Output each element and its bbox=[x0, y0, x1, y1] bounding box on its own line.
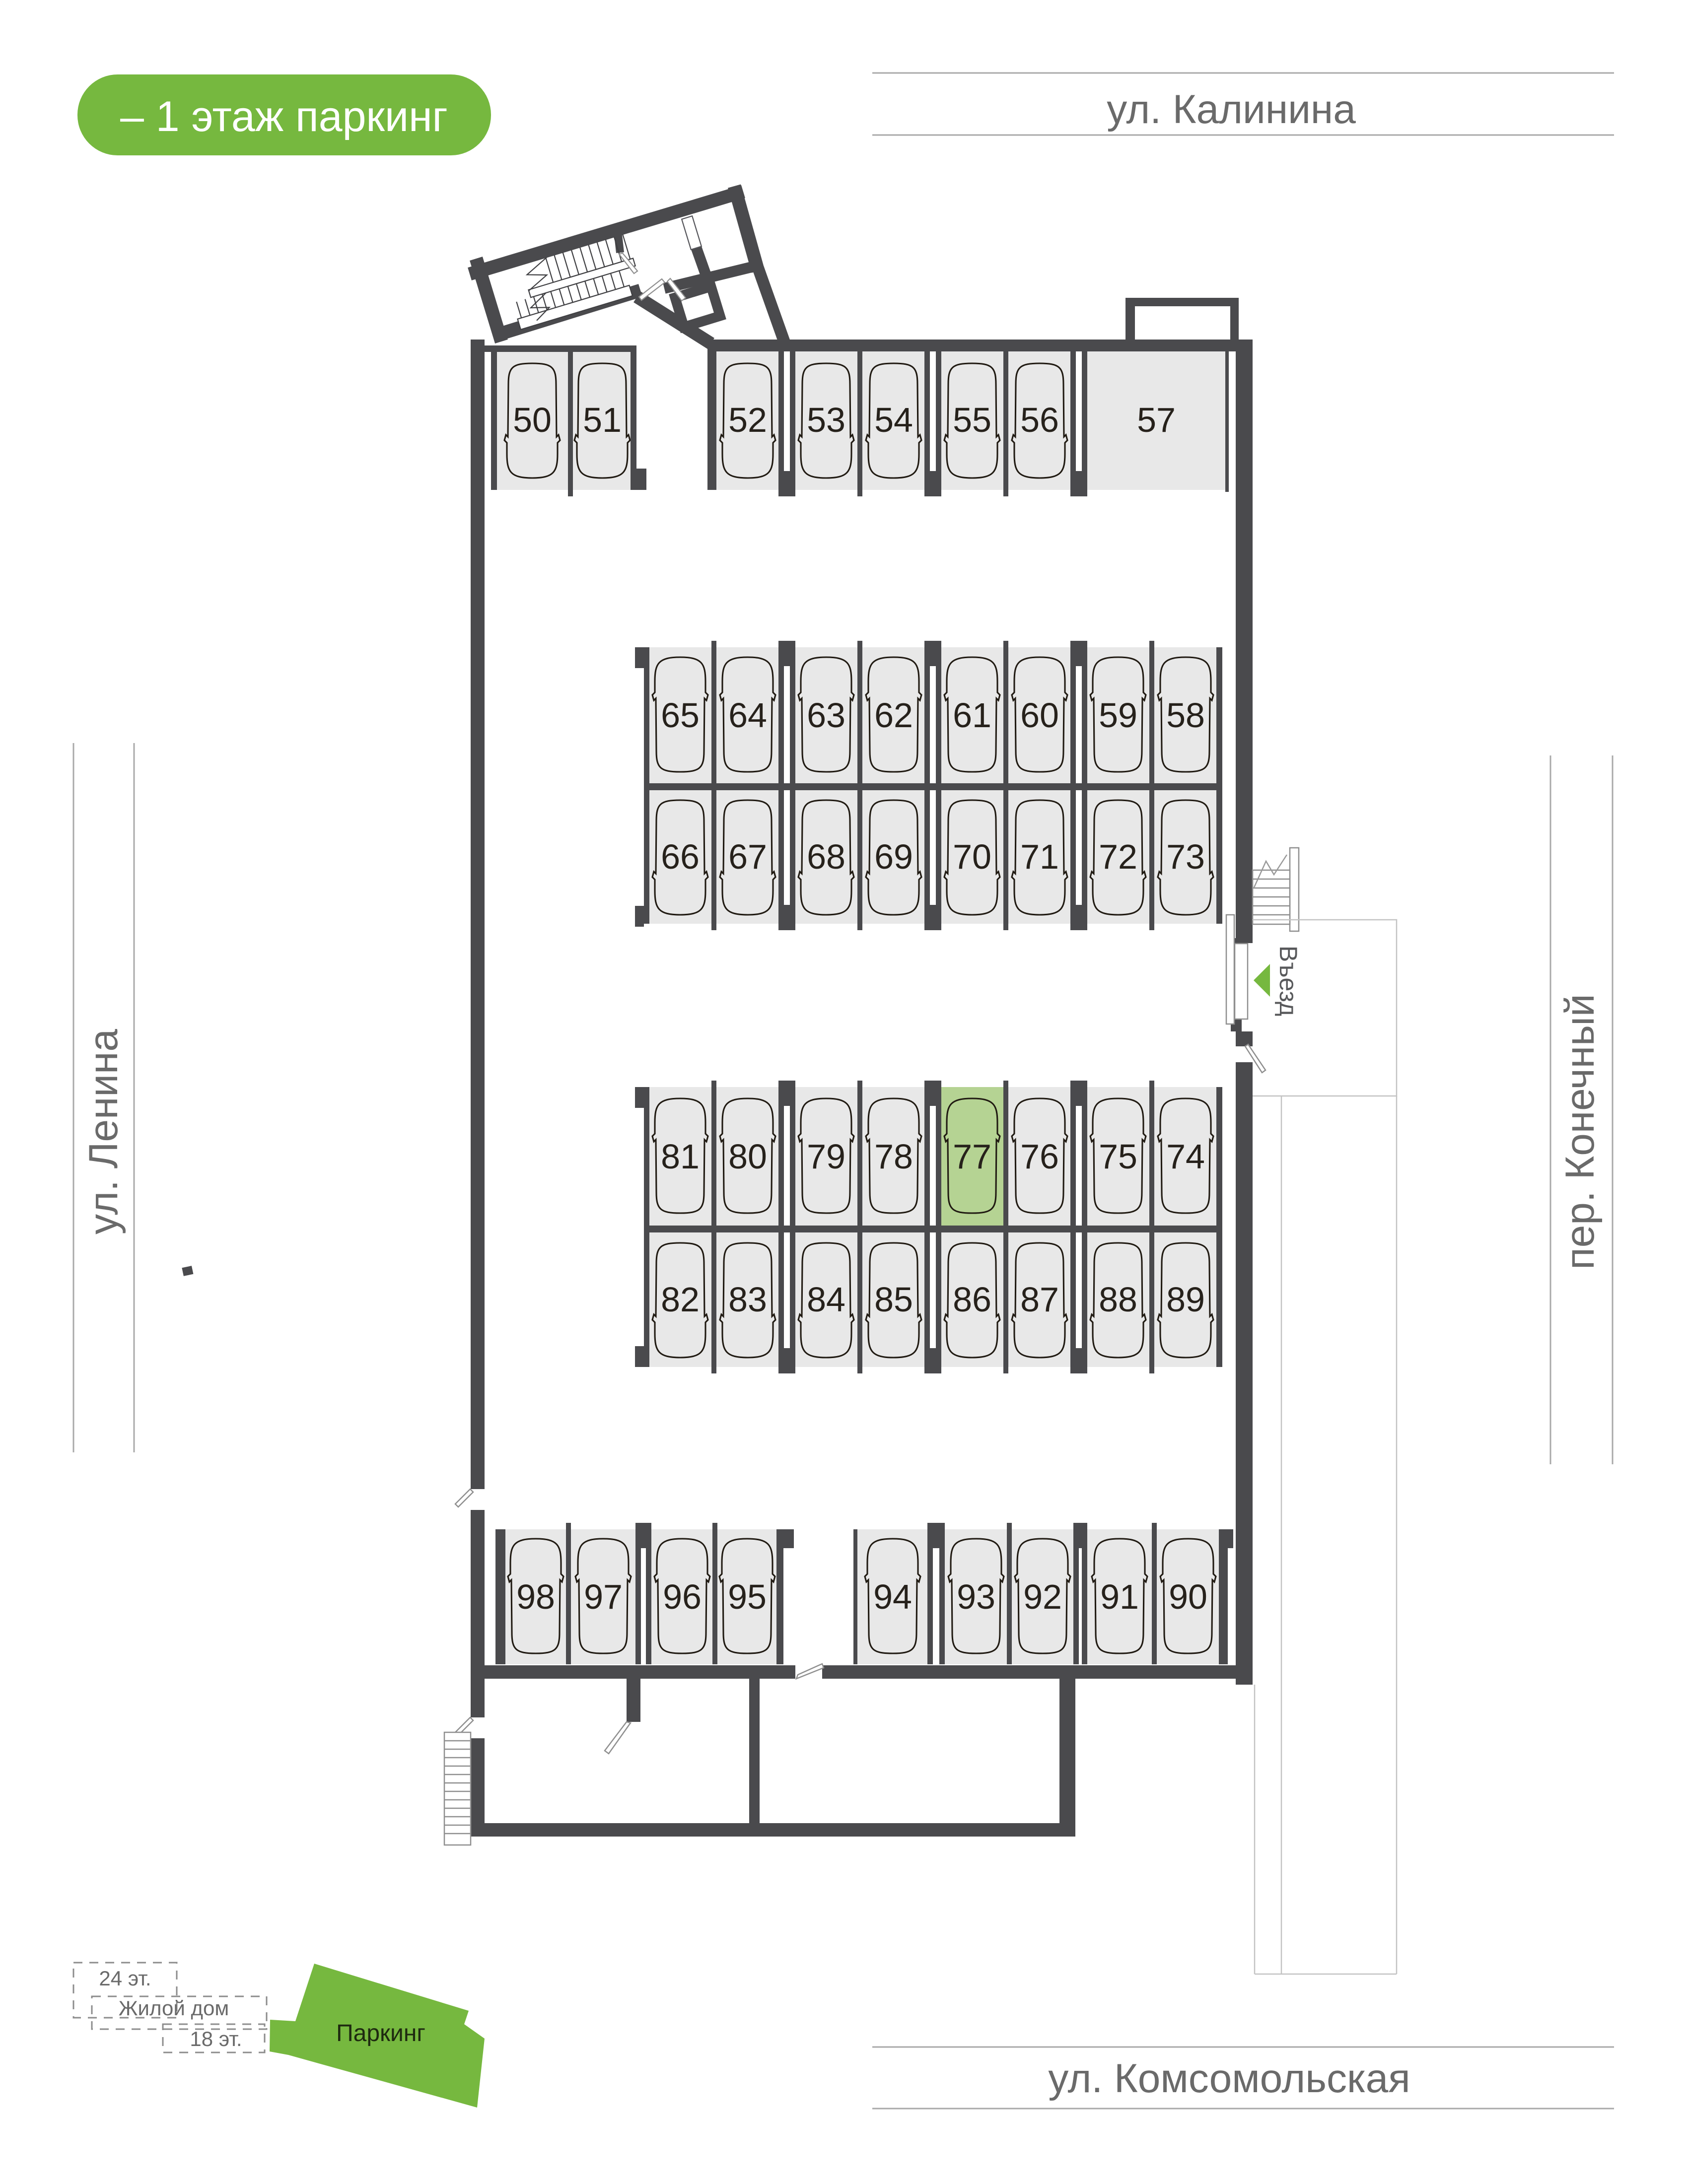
svg-text:84: 84 bbox=[807, 1280, 845, 1319]
svg-text:76: 76 bbox=[1020, 1137, 1059, 1176]
svg-text:59: 59 bbox=[1099, 696, 1137, 735]
svg-text:89: 89 bbox=[1166, 1280, 1205, 1319]
svg-text:– 1 этаж паркинг: – 1 этаж паркинг bbox=[120, 93, 448, 140]
svg-text:Жилой дом: Жилой дом bbox=[119, 1996, 229, 2020]
svg-text:85: 85 bbox=[874, 1280, 913, 1319]
svg-text:61: 61 bbox=[953, 696, 991, 735]
svg-text:93: 93 bbox=[957, 1577, 995, 1616]
svg-text:77: 77 bbox=[953, 1137, 991, 1176]
svg-text:74: 74 bbox=[1166, 1137, 1205, 1176]
svg-text:24 эт.: 24 эт. bbox=[99, 1967, 151, 1990]
svg-text:65: 65 bbox=[661, 696, 700, 735]
svg-text:62: 62 bbox=[874, 696, 913, 735]
svg-text:54: 54 bbox=[874, 401, 913, 439]
svg-text:83: 83 bbox=[728, 1280, 767, 1319]
svg-text:92: 92 bbox=[1023, 1577, 1062, 1616]
svg-text:66: 66 bbox=[661, 837, 700, 876]
svg-text:55: 55 bbox=[953, 401, 991, 439]
svg-text:81: 81 bbox=[661, 1137, 700, 1176]
svg-text:75: 75 bbox=[1099, 1137, 1137, 1176]
svg-text:51: 51 bbox=[583, 401, 622, 439]
svg-text:56: 56 bbox=[1020, 401, 1059, 439]
svg-text:96: 96 bbox=[663, 1577, 702, 1616]
svg-text:пер. Конечный: пер. Конечный bbox=[1557, 994, 1603, 1269]
svg-text:64: 64 bbox=[728, 696, 767, 735]
svg-text:60: 60 bbox=[1020, 696, 1059, 735]
svg-text:57: 57 bbox=[1137, 401, 1176, 439]
svg-text:ул. Калинина: ул. Калинина bbox=[1107, 87, 1356, 132]
svg-text:87: 87 bbox=[1020, 1280, 1059, 1319]
svg-text:18 эт.: 18 эт. bbox=[190, 2027, 242, 2050]
svg-text:67: 67 bbox=[728, 837, 767, 876]
svg-text:78: 78 bbox=[874, 1137, 913, 1176]
svg-text:ул. Ленина: ул. Ленина bbox=[81, 1029, 126, 1234]
svg-text:63: 63 bbox=[807, 696, 845, 735]
svg-text:86: 86 bbox=[953, 1280, 991, 1319]
svg-text:98: 98 bbox=[516, 1577, 555, 1616]
svg-text:53: 53 bbox=[807, 401, 845, 439]
svg-text:90: 90 bbox=[1169, 1577, 1207, 1616]
svg-text:69: 69 bbox=[874, 837, 913, 876]
svg-text:82: 82 bbox=[661, 1280, 700, 1319]
svg-text:79: 79 bbox=[807, 1137, 845, 1176]
svg-text:Паркинг: Паркинг bbox=[336, 2020, 425, 2047]
svg-text:70: 70 bbox=[953, 837, 991, 876]
svg-text:ул. Комсомольская: ул. Комсомольская bbox=[1048, 2056, 1410, 2101]
svg-text:97: 97 bbox=[584, 1577, 623, 1616]
svg-text:50: 50 bbox=[513, 401, 552, 439]
svg-text:73: 73 bbox=[1166, 837, 1205, 876]
svg-text:68: 68 bbox=[807, 837, 845, 876]
svg-text:52: 52 bbox=[728, 401, 767, 439]
svg-text:94: 94 bbox=[873, 1577, 912, 1616]
svg-text:91: 91 bbox=[1100, 1577, 1139, 1616]
svg-text:80: 80 bbox=[728, 1137, 767, 1176]
svg-text:Въезд: Въезд bbox=[1274, 946, 1302, 1016]
svg-text:58: 58 bbox=[1166, 696, 1205, 735]
svg-text:88: 88 bbox=[1099, 1280, 1137, 1319]
svg-text:95: 95 bbox=[728, 1577, 767, 1616]
svg-text:72: 72 bbox=[1099, 837, 1137, 876]
svg-text:71: 71 bbox=[1020, 837, 1059, 876]
